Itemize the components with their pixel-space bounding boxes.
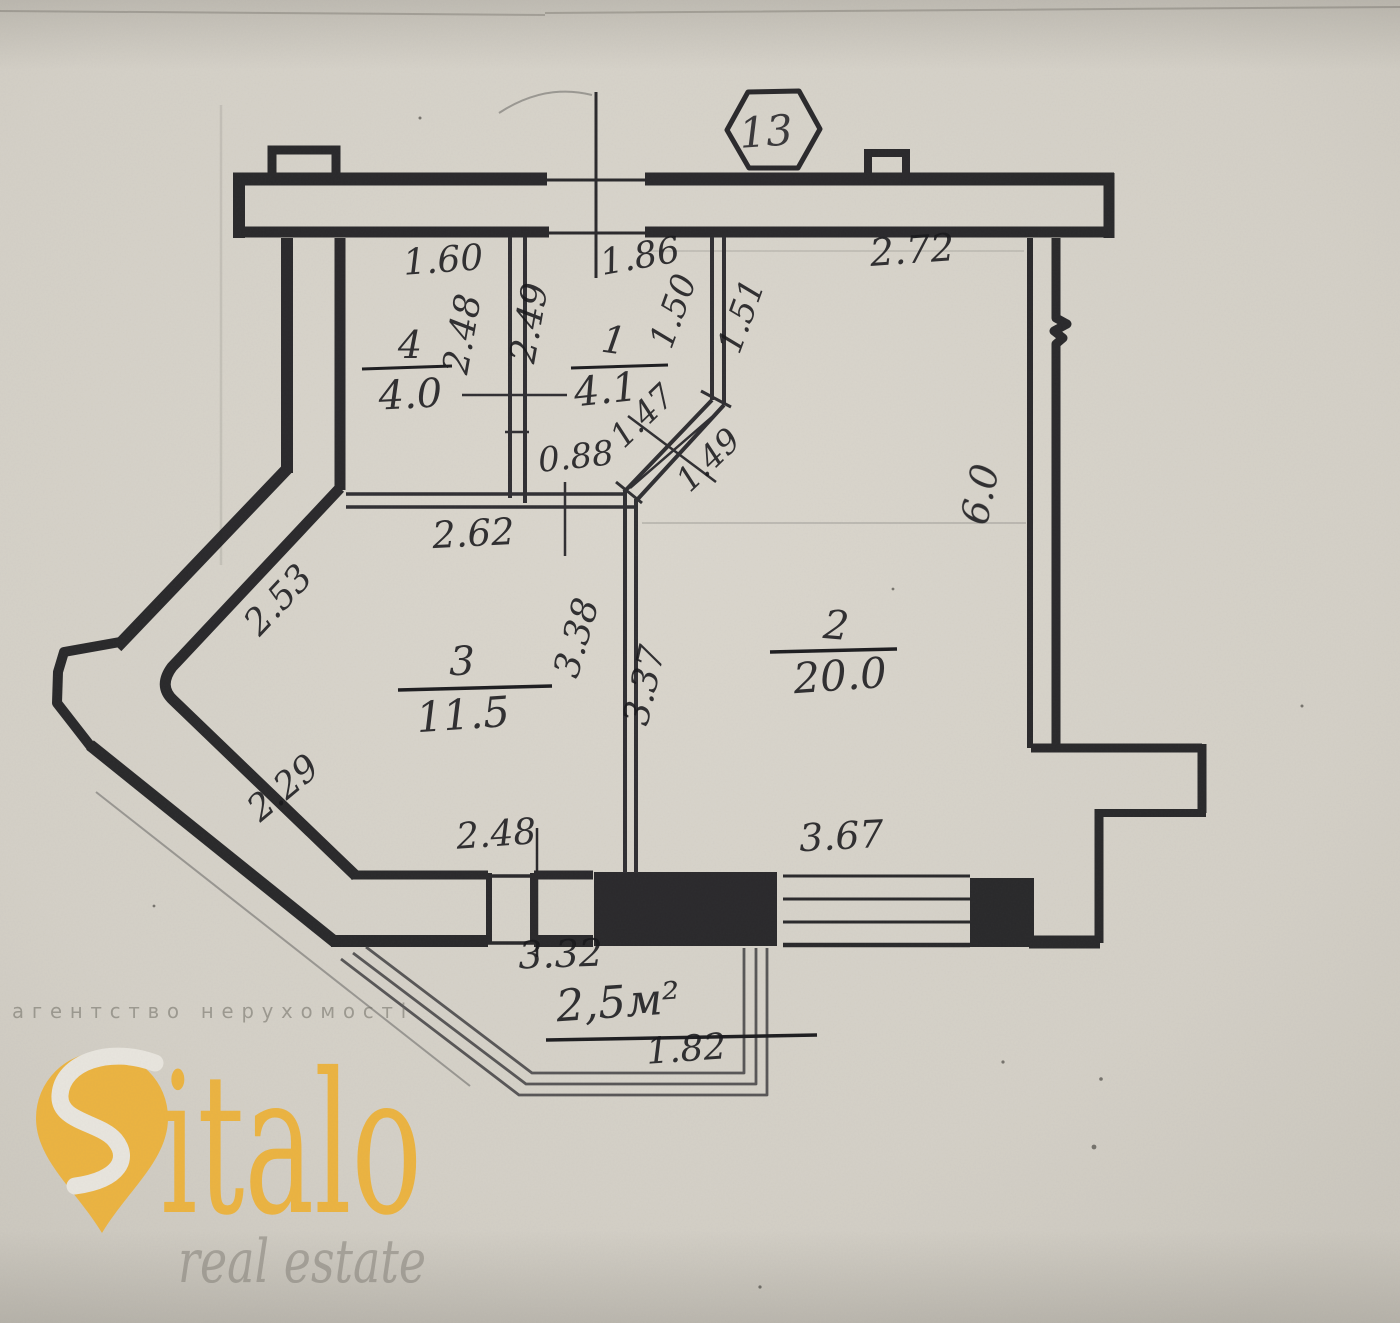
- floorplan-photo: 13 1.60 1.86 2.72 2.48 2.49 1.50 1.51 0.…: [0, 0, 1400, 1323]
- paper-grain-overlay: [0, 0, 1400, 1323]
- floorplan-drawing: 13 1.60 1.86 2.72 2.48 2.49 1.50 1.51 0.…: [0, 0, 1400, 1323]
